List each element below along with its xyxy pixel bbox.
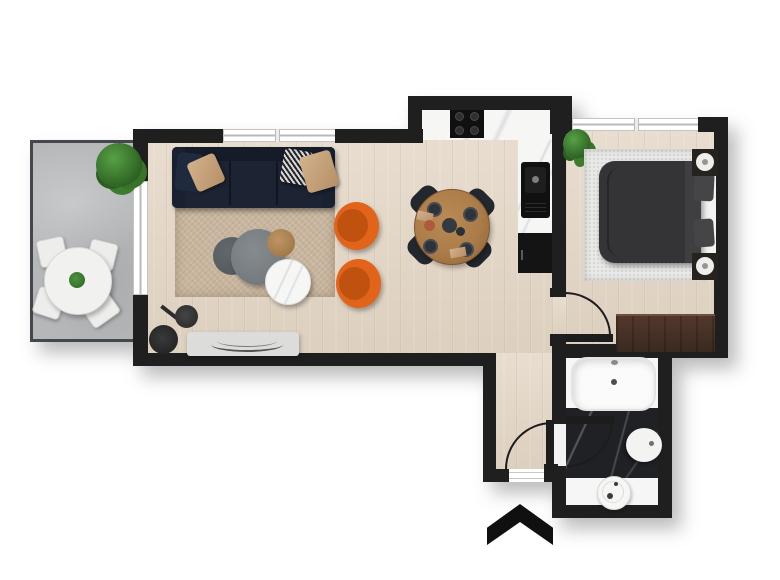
nightstand [692,253,718,280]
cabinet-handle [521,250,523,260]
table-lamp-center [702,263,708,269]
console-table [187,332,299,356]
bed-duvet [599,161,701,263]
kitchen-tall-cabinet [518,233,554,273]
wall-bathroom-west-upper [552,344,566,424]
wall-kitchen-bedroom [552,97,566,295]
tub-faucet-icon [611,360,618,365]
balcony-glass-door [133,181,148,295]
bathtub [571,357,656,411]
wall-kitchen-north [408,96,568,110]
armchair-seat [337,209,368,242]
wardrobe [616,314,715,352]
kitchen-sink [521,162,550,218]
apartment-plan [0,0,780,580]
balcony-plant [96,143,142,187]
toilet-hinge-icon [614,482,618,486]
center-bowl [442,218,457,233]
floor-lamp-base [149,325,178,354]
toilet-lid-line [602,481,624,503]
bed-pillow [693,172,714,201]
bathroom-doorway-floor [552,422,566,468]
burner-icon [470,112,479,121]
wall-bathroom-east [658,344,672,518]
terracotta-dish [424,220,435,231]
place-setting-plate [463,207,478,222]
table-centerpiece-plant [69,272,85,288]
sink-faucet-icon [532,176,539,183]
kitchen-counter-top [421,106,553,140]
wall-hall-west [483,353,496,482]
duvet-crease [607,167,689,257]
center-dish [456,227,465,236]
bedroom-door-jamb-bottom [550,334,566,346]
orange-armchair [334,202,379,250]
console-decor-bowl [217,335,277,347]
bedroom-doorway-floor [552,295,566,337]
burner-icon [470,126,479,135]
floor-plan-canvas [0,0,780,580]
wall-hall-south-stub [483,469,509,482]
front-door-threshold [509,469,549,482]
armchair-seat [339,267,370,300]
bed-pillow [693,218,715,247]
window-divider [275,129,280,142]
window-divider [634,118,639,131]
toilet-flush-icon [607,493,613,499]
floor-lamp-head [175,305,198,328]
nightstand [692,149,718,176]
marble-side-table [265,259,311,305]
tub-drain-icon [611,379,617,385]
basin-faucet-icon [649,441,654,446]
living-window [223,129,337,142]
burner-icon [455,112,464,121]
place-setting-plate [423,239,438,254]
sink-drainboard [525,200,546,214]
cooktop [450,108,484,138]
burner-icon [455,126,464,135]
small-wood-table [267,229,295,257]
table-lamp-center [702,159,708,165]
toilet [597,476,631,510]
bedroom-door-jamb-top [550,288,566,297]
orange-armchair [336,259,381,308]
wall-basin [626,428,662,462]
